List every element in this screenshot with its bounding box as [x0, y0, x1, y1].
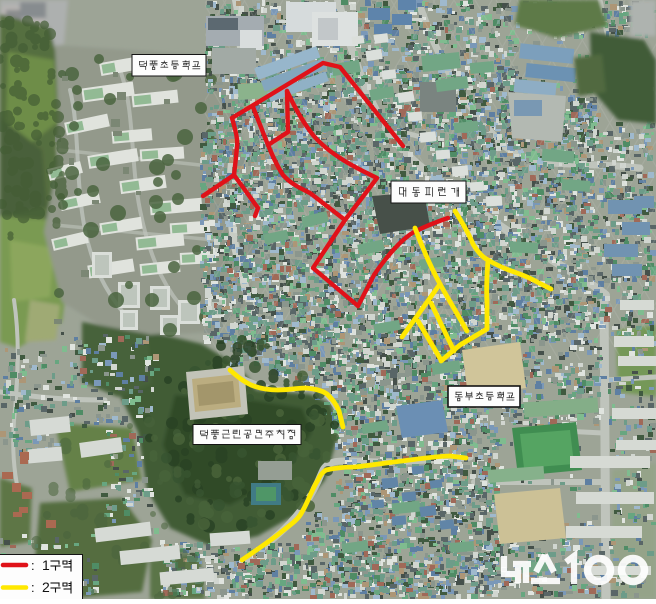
svg-text::: : [31, 580, 35, 595]
svg-text:2: 2 [42, 579, 50, 595]
svg-text:1: 1 [42, 557, 50, 573]
svg-text::: : [31, 558, 35, 573]
